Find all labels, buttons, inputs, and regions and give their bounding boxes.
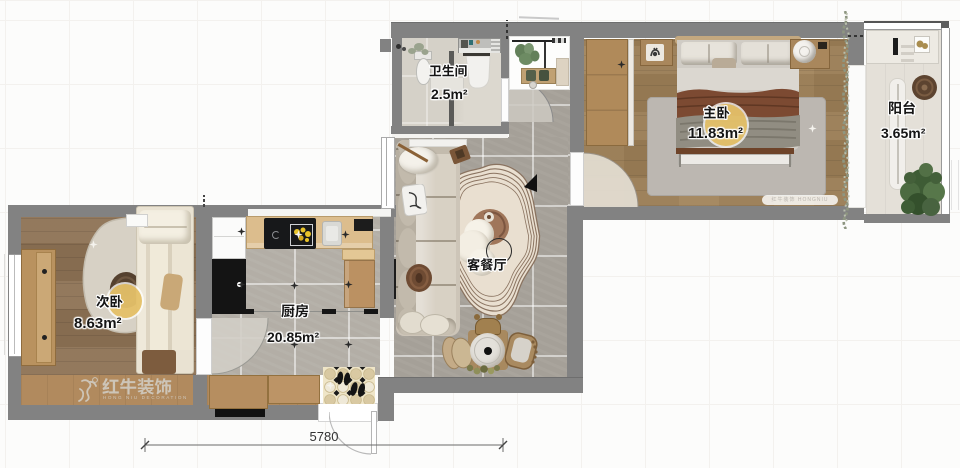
svg-text:5780: 5780 xyxy=(310,429,339,444)
